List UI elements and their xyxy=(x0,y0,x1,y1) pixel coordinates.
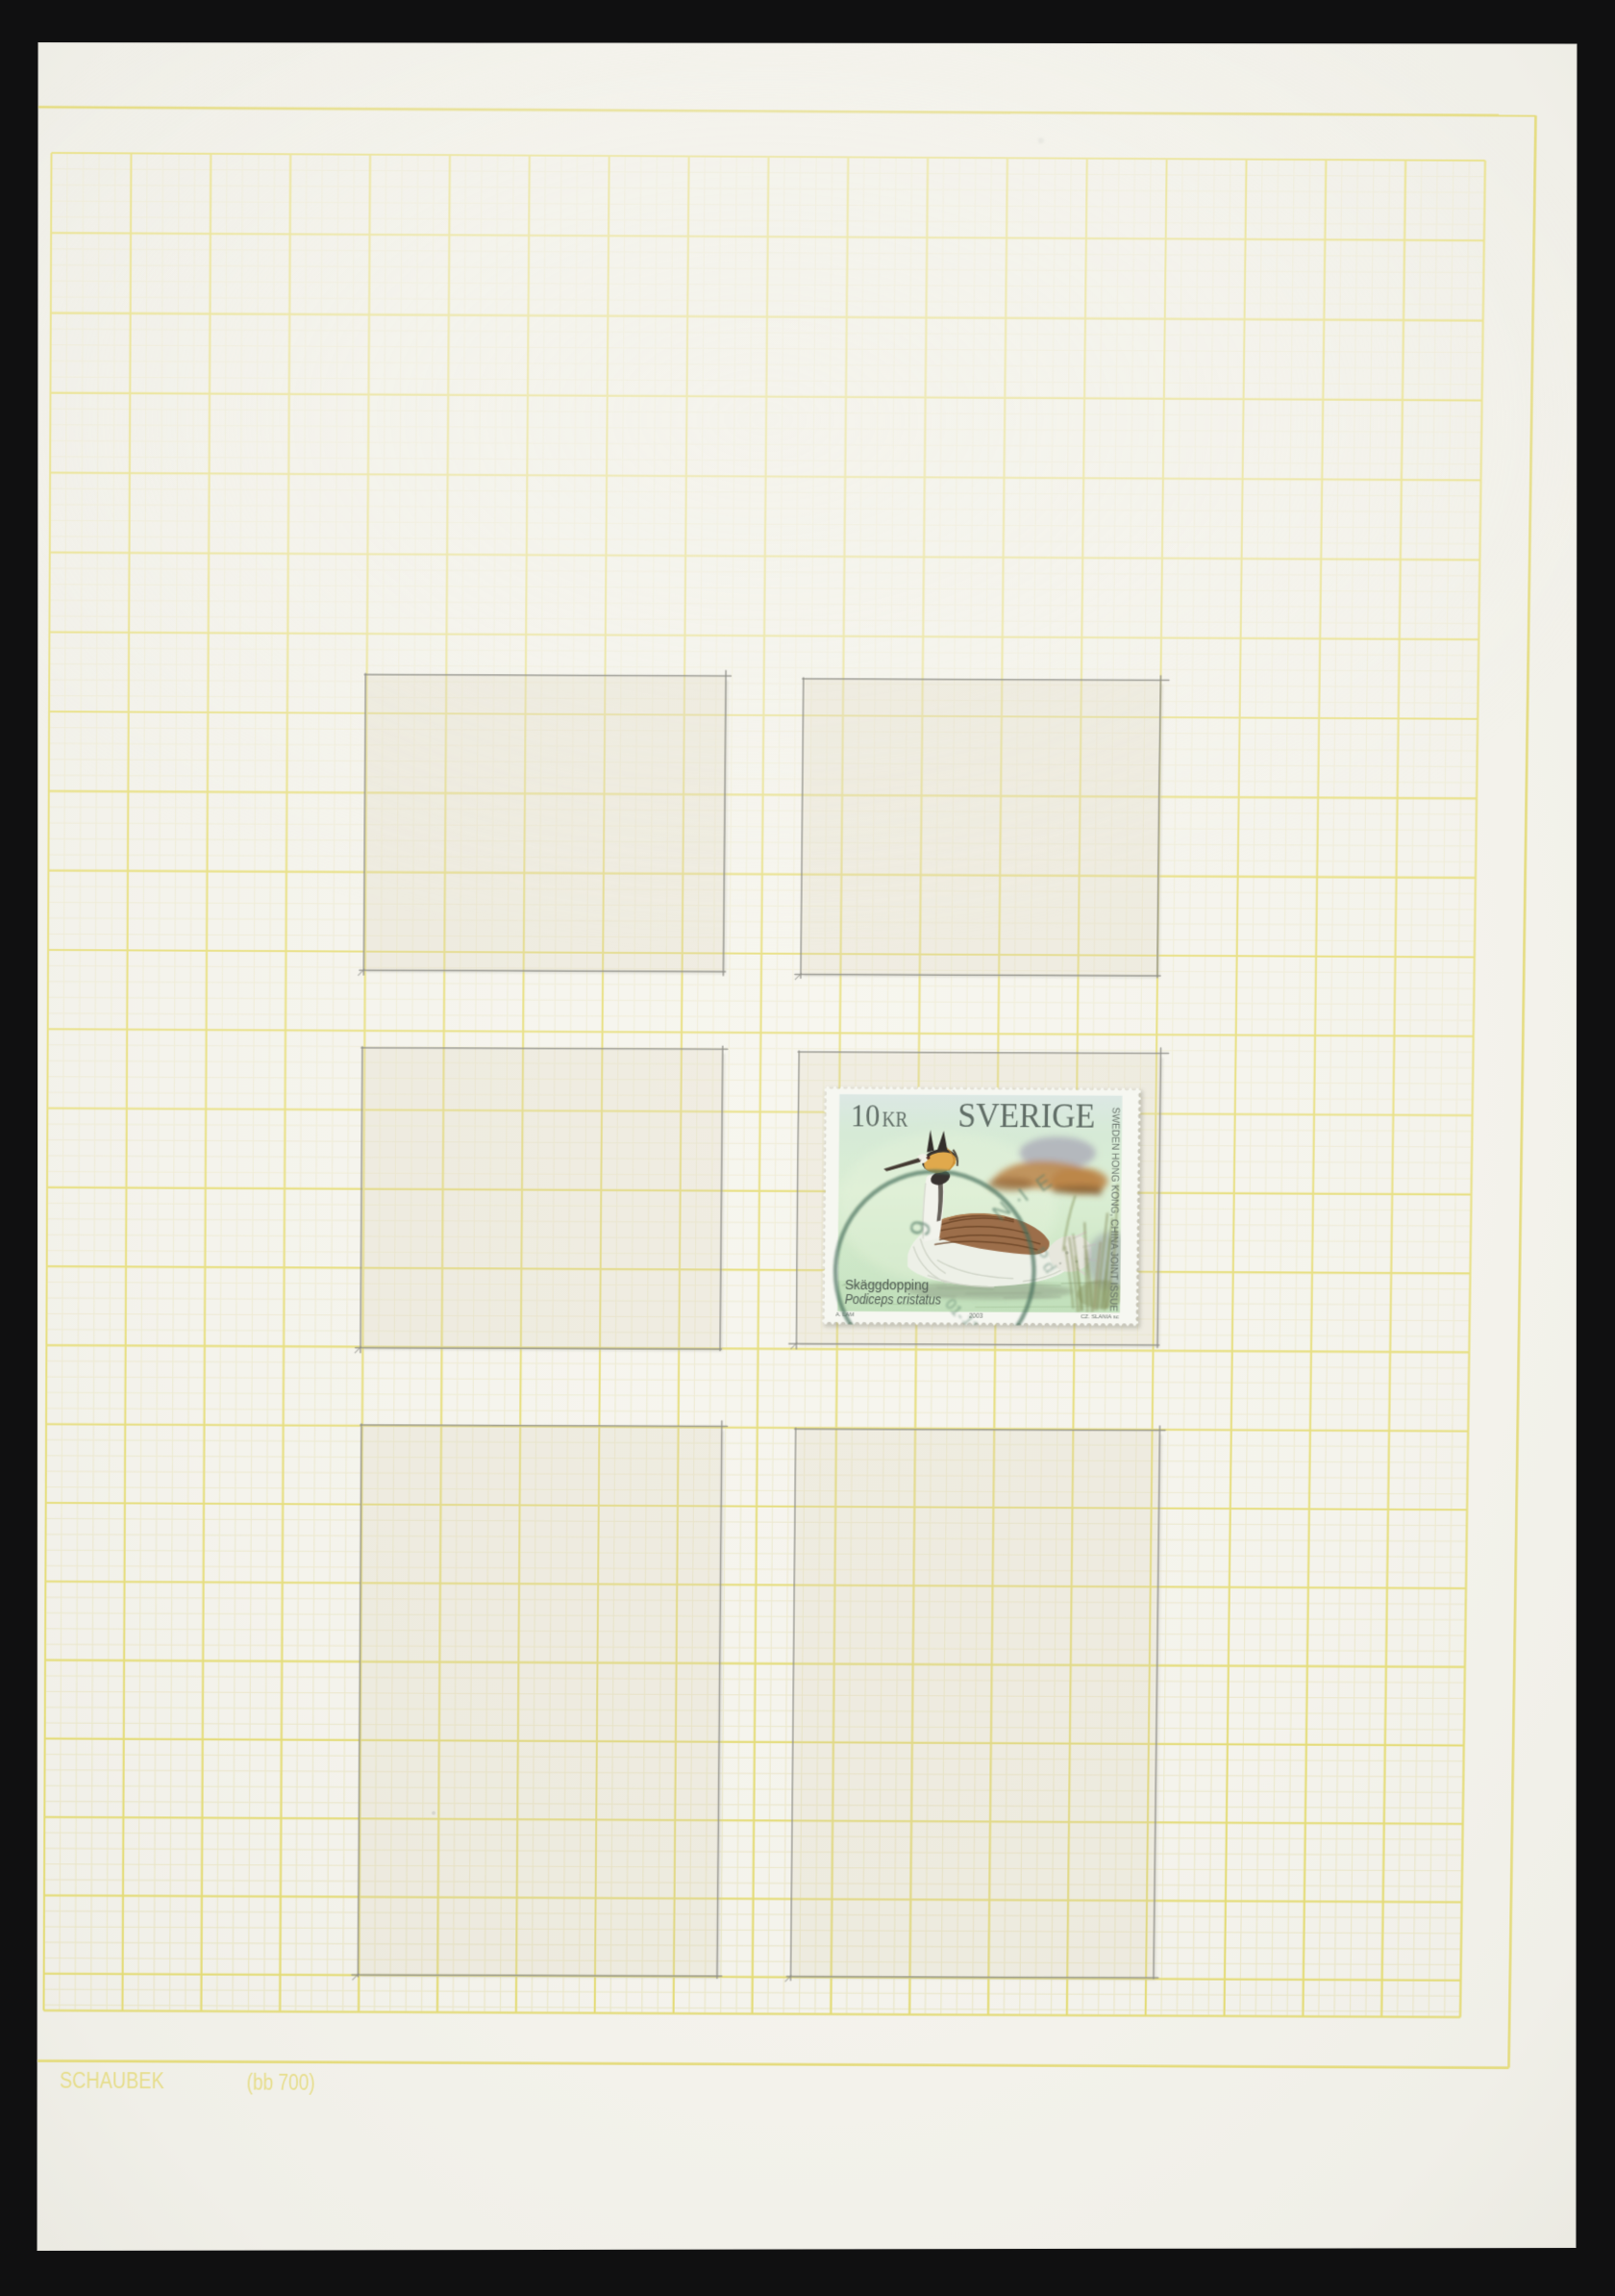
svg-text:SCHAUBEK: SCHAUBEK xyxy=(60,2068,164,2094)
svg-text:(bb 700): (bb 700) xyxy=(247,2070,315,2095)
